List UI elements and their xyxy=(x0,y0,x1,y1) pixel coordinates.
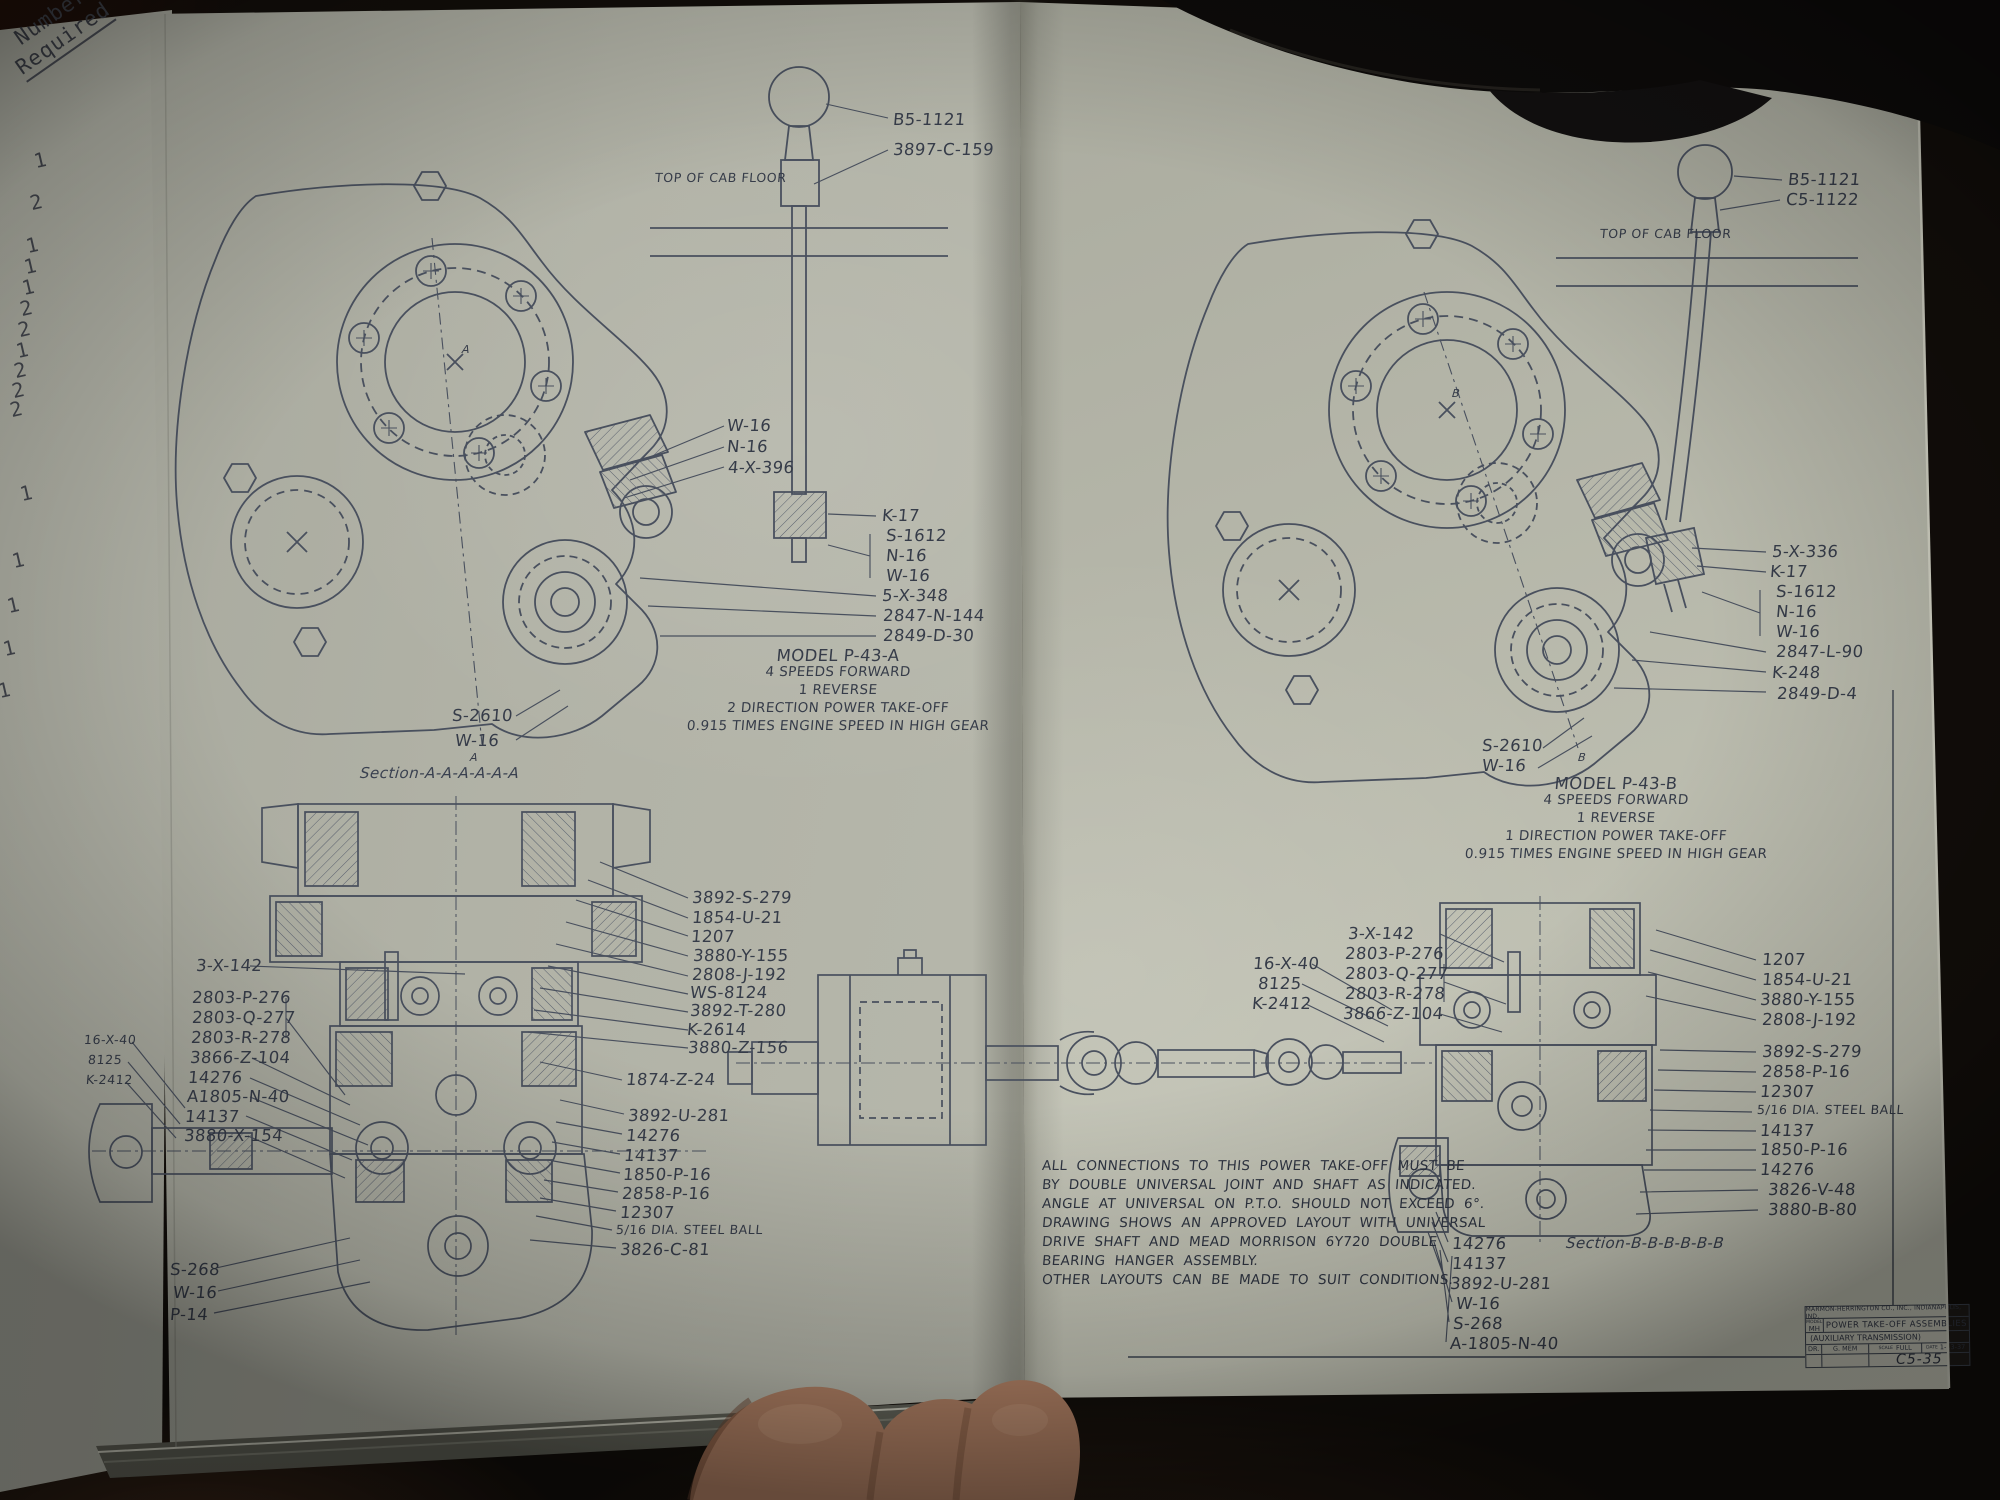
title-block-scale-label: SCALE xyxy=(1879,1346,1894,1351)
title-block-code-cell: MODEL MH xyxy=(1806,1319,1824,1332)
title-block: MARMON-HERRINGTON CO., INC., INDIANAPOLI… xyxy=(1805,1304,1971,1368)
title-block-code: MH xyxy=(1809,1326,1820,1332)
title-block-title: POWER TAKE-OFF ASSEMBLIES xyxy=(1824,1317,1969,1332)
title-block-scale: FULL xyxy=(1896,1344,1912,1352)
title-block-date-cell: DATE 1-13-37 xyxy=(1922,1342,1969,1352)
title-block-dr-label: DR. xyxy=(1806,1344,1822,1354)
book-gutter-shadow xyxy=(972,0,1064,1410)
sheet-number: C5-35 xyxy=(1869,1353,1969,1366)
title-block-drafter: G. MEM xyxy=(1822,1344,1869,1354)
title-block-empty-cell xyxy=(1806,1355,1822,1367)
title-block-date-label: DATE xyxy=(1926,1345,1938,1350)
title-block-date: 1-13-37 xyxy=(1940,1343,1965,1351)
title-block-empty-cell xyxy=(1822,1354,1869,1367)
title-block-scale-cell: SCALE FULL xyxy=(1869,1343,1922,1353)
photo-scene: Number Required 1211122122211111 B5-1121… xyxy=(0,0,2000,1500)
